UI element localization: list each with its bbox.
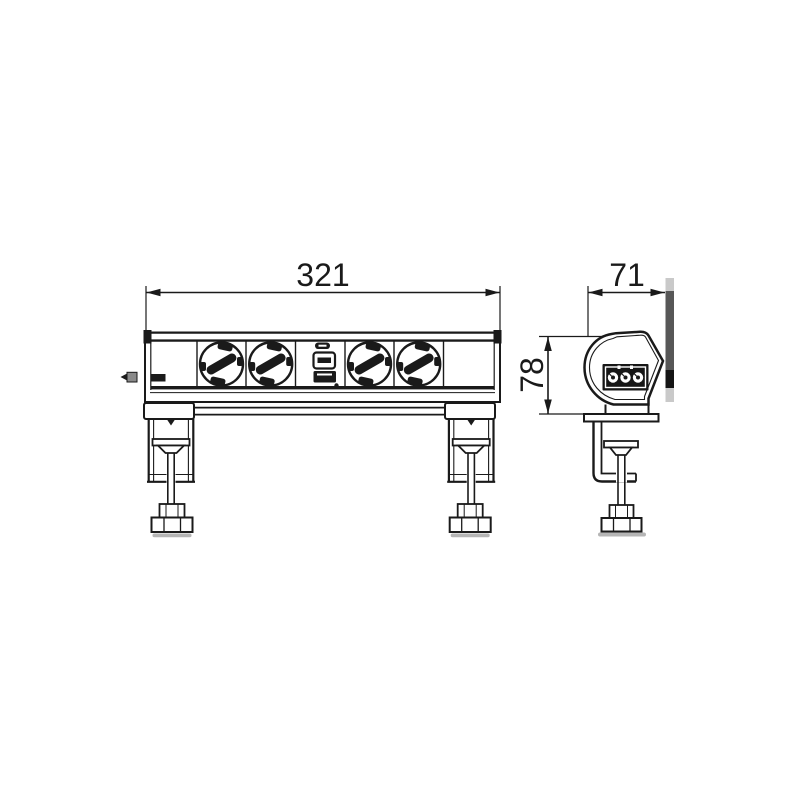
clamp-left xyxy=(147,419,195,537)
dimension-depth: 71 xyxy=(588,257,665,336)
schuko-socket-4-icon xyxy=(397,341,440,386)
drawing-canvas: 321 xyxy=(0,0,800,800)
dimension-width-label: 321 xyxy=(296,257,349,293)
feed-tab xyxy=(121,372,138,382)
side-view: 71 78 xyxy=(514,257,674,537)
bracket-bar xyxy=(144,403,495,419)
knob-shadow xyxy=(598,533,646,537)
arrow-left-icon xyxy=(147,289,161,297)
technical-drawing: 321 xyxy=(0,0,800,800)
dimension-width: 321 xyxy=(146,257,500,331)
arrow-left-icon xyxy=(589,289,603,297)
clamp-side xyxy=(594,422,647,537)
schuko-socket-3-icon xyxy=(348,341,391,386)
front-view: 321 xyxy=(121,257,502,537)
arrow-right-icon xyxy=(486,289,500,297)
arrow-right-icon xyxy=(651,289,665,297)
arrow-up-icon xyxy=(544,337,552,351)
power-connector-3pin-icon xyxy=(603,364,649,391)
side-body xyxy=(584,332,663,422)
label-plate xyxy=(151,374,166,382)
dimension-height-label: 78 xyxy=(514,357,550,393)
usb-charger-icon xyxy=(314,343,339,388)
edge-strip xyxy=(666,278,675,402)
arrow-down-icon xyxy=(544,400,552,414)
dimension-depth-label: 71 xyxy=(609,257,645,293)
schuko-socket-2-icon xyxy=(249,341,292,386)
clamp-right xyxy=(447,419,495,537)
schuko-socket-1-icon xyxy=(200,341,243,386)
